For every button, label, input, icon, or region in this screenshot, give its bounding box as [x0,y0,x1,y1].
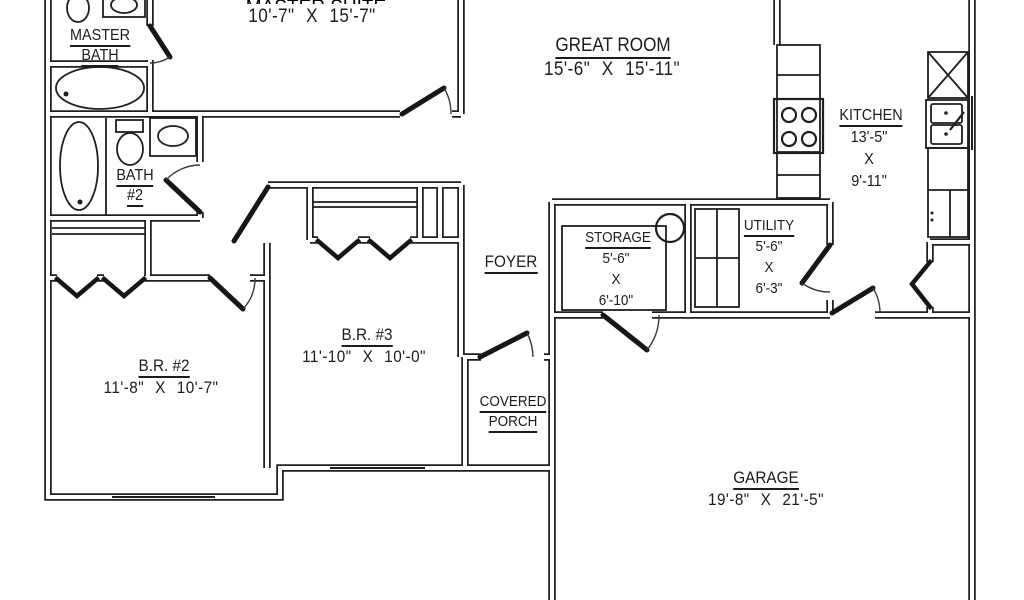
sink-bowl [158,126,188,146]
master-suite-dims: 10'-7" X 15'-7" [248,6,375,28]
br3-dims: 11'-10" X 10'-0" [302,347,426,367]
toilet-tank [116,120,143,132]
storage-garage-door [603,315,647,350]
tub-drain [78,200,83,205]
room-label-foyer: FOYER [485,252,538,272]
kitchen-dim-h: 9'-11" [851,173,887,191]
sink-bowl [111,0,137,13]
walls [48,0,972,600]
tub-drain [64,92,69,97]
room-label-bath2: BATH [116,167,153,185]
pantry-bifold [912,262,930,307]
room-label-utility: UTILITY [744,217,794,234]
bifold-doors [57,241,930,307]
kitchen-dim-sep: X [864,151,874,169]
bath2-door [166,180,200,212]
bathtub [56,67,144,109]
br2-closet-bifold [104,279,144,296]
front-door [480,333,527,357]
vanity [103,0,145,17]
room-label-master-suite: MASTER SUITE [236,0,396,4]
storage-dim-sep: X [611,271,620,288]
kitchen-dim-w: 13'-5" [851,129,888,147]
water-heater [656,214,684,242]
room-label-great-room: GREAT ROOM [555,35,670,57]
room-label-br3: B.R. #3 [341,325,392,345]
floorplan-drawing [0,0,1024,600]
br3-closet-bifold [318,241,358,258]
east-counter [928,148,968,237]
br3-closet-bifold [370,241,410,258]
bathtub [60,122,98,210]
storage-dim-h: 6'-10" [599,292,633,309]
floor-plan: MASTER SUITE 10'-7" X 15'-7" MASTER BATH… [0,0,1024,600]
room-label-bath2-2: #2 [127,187,143,205]
doors [150,26,880,357]
room-label-covered-porch: COVERED [480,393,547,410]
br2-closet-bifold [57,279,97,296]
vanity [150,118,196,156]
room-label-kitchen: KITCHEN [839,107,902,125]
master-suite-door [402,88,444,114]
room-label-storage: STORAGE [585,229,651,246]
toilet-bowl [117,133,143,165]
great-room-dims: 15'-6" X 15'-11" [544,59,680,81]
utility-dim-h: 6'-3" [756,280,783,297]
utility-dim-w: 5'-6" [756,238,783,255]
room-label-master-bath-2: BATH [81,47,118,65]
br2-door [210,278,243,309]
garage-dims: 19'-8" X 21'-5" [708,490,824,510]
hall-garage-door [832,288,873,313]
storage-dim-w: 5'-6" [603,250,630,267]
utility-door [802,245,830,283]
utility-dim-sep: X [764,259,773,276]
room-label-covered-porch-2: PORCH [489,413,538,430]
range-stove [774,99,823,153]
br2-dims: 11'-8" X 10'-7" [104,378,219,398]
master-bath-door [150,26,170,57]
room-label-master-bath: MASTER [70,27,130,45]
utility-fixtures [695,209,739,307]
room-label-garage: GARAGE [733,468,798,488]
toilet [67,0,89,22]
windows [112,96,972,497]
room-label-br2: B.R. #2 [138,356,189,376]
br3-door [234,187,268,241]
